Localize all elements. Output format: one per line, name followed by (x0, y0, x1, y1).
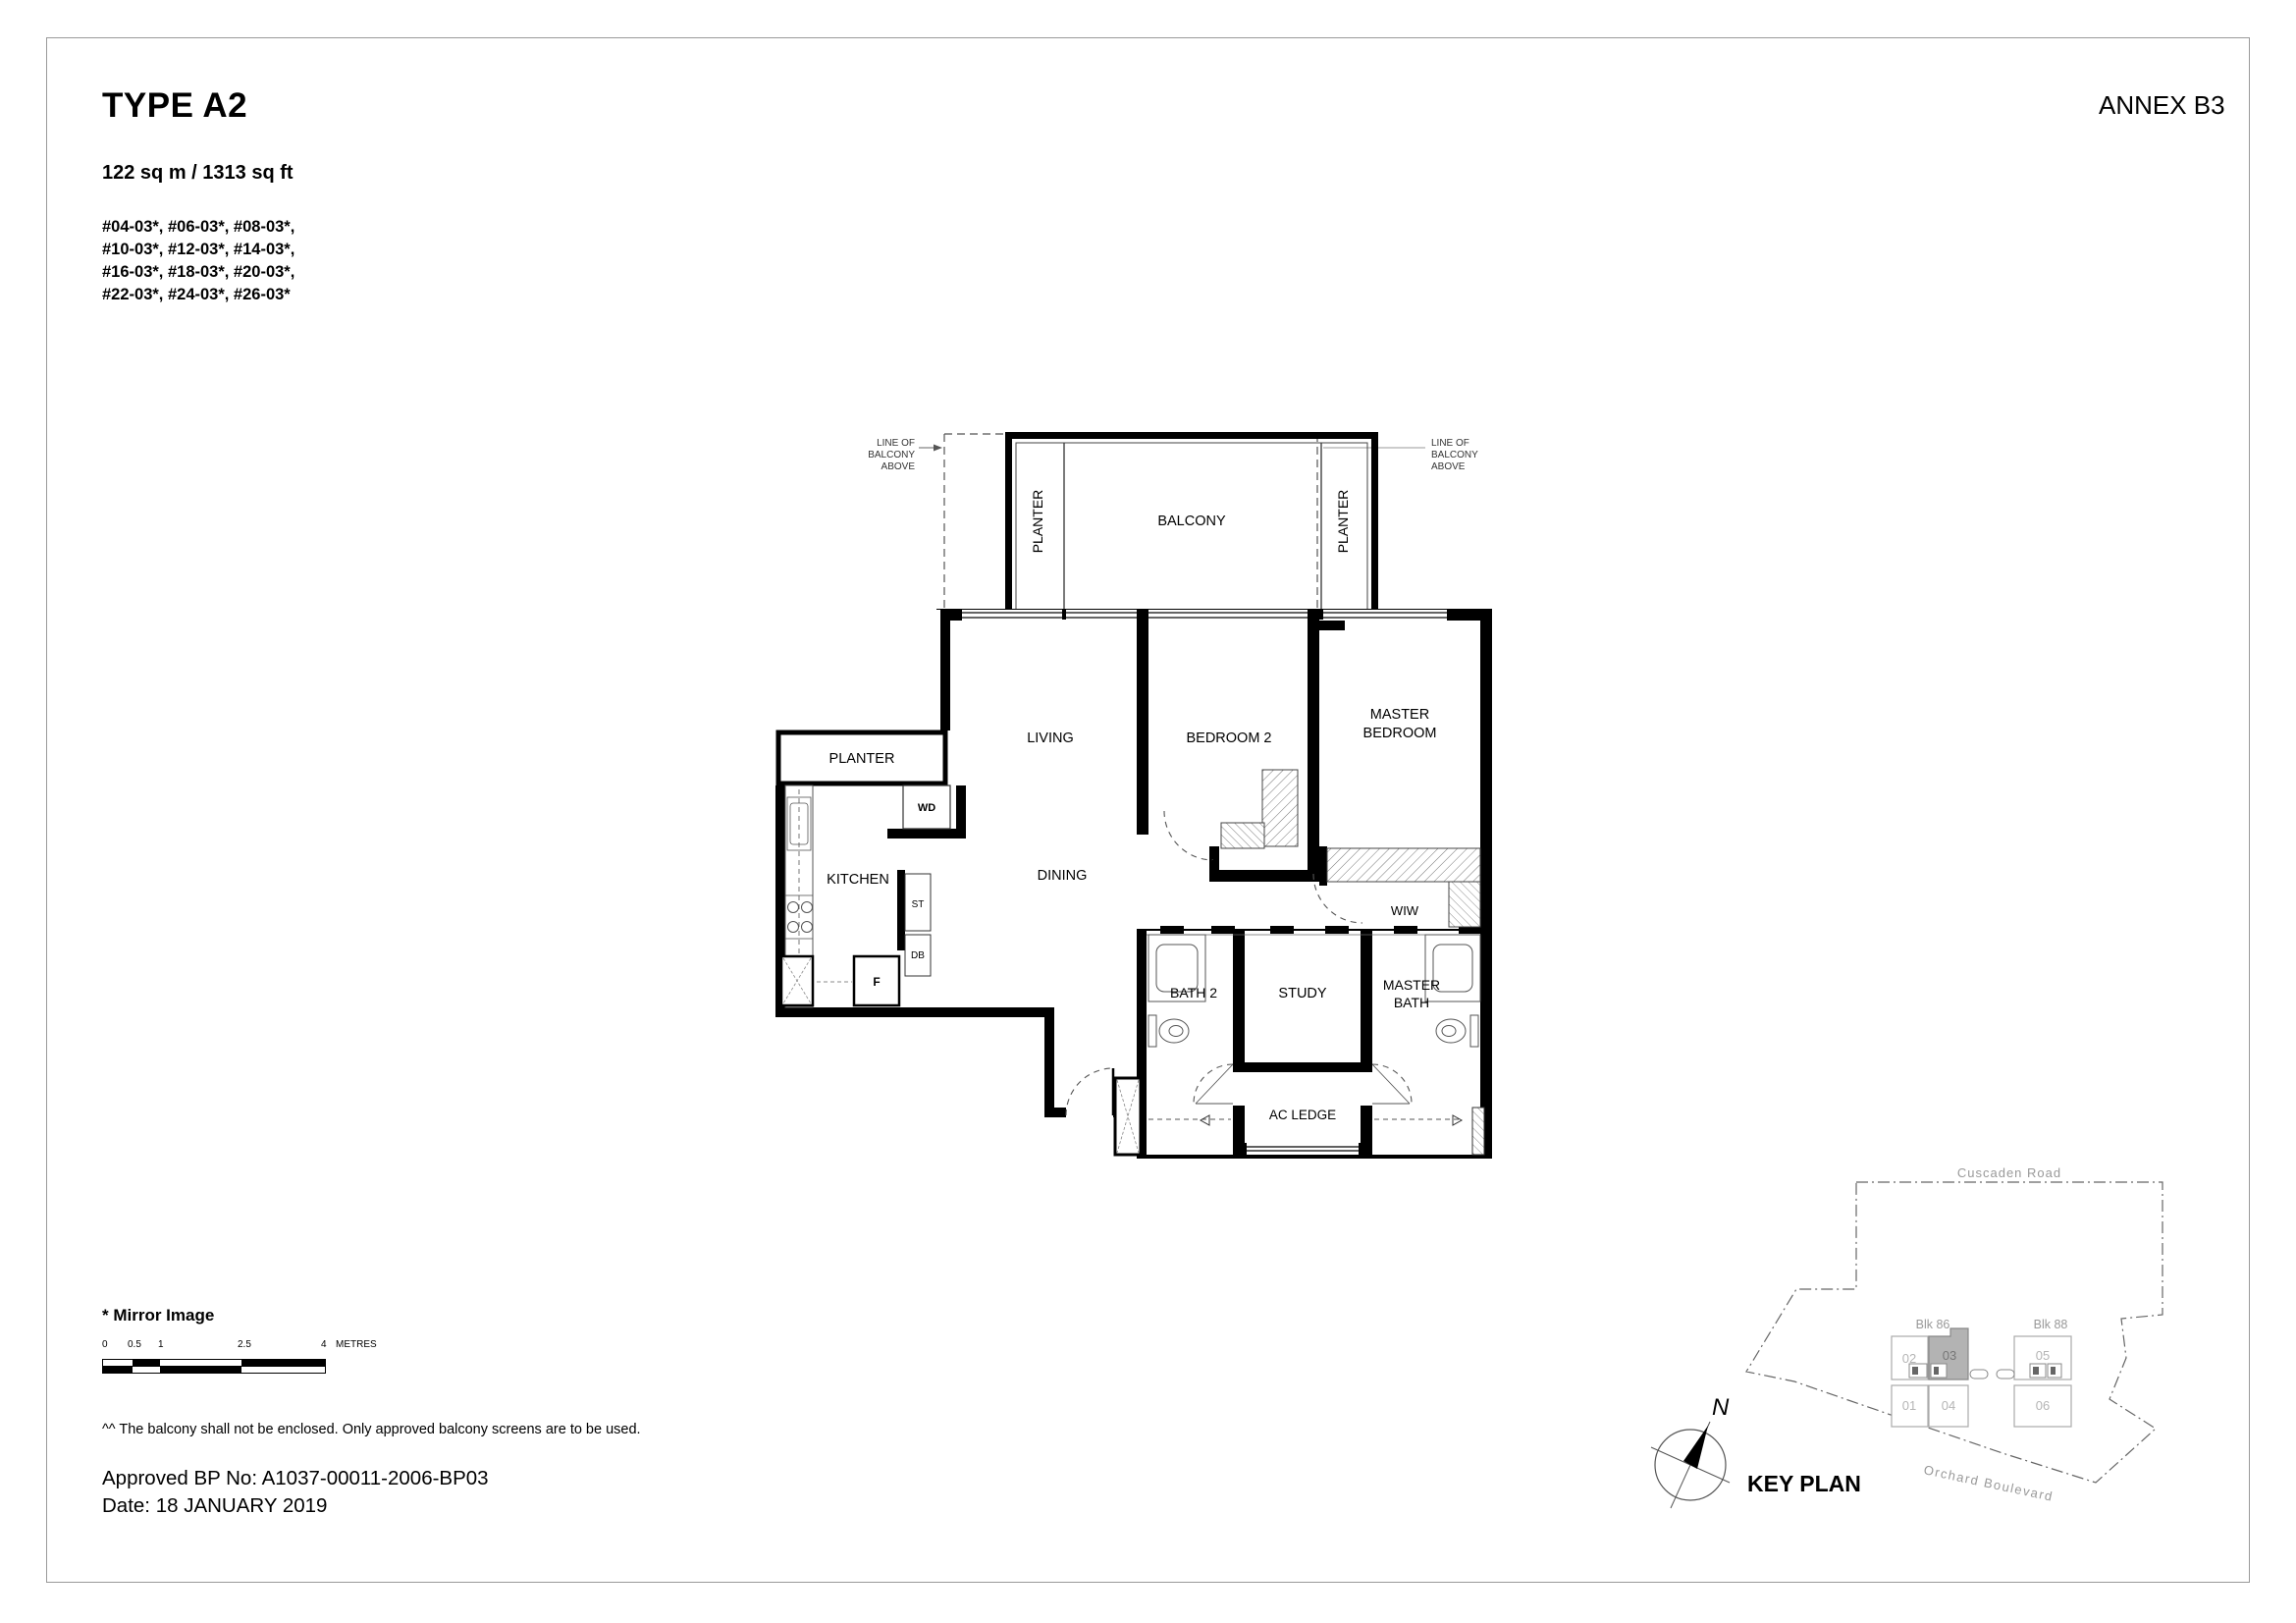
store-label: ST (912, 899, 925, 910)
line-of-balcony-label-left: LINE OF BALCONY ABOVE (868, 438, 915, 472)
bedroom2-wardrobe (1221, 770, 1298, 848)
north-compass-icon (1651, 1422, 1730, 1508)
kitchen-shaft (781, 956, 813, 1005)
bp-number: Approved BP No: A1037-00011-2006-BP03 (102, 1465, 489, 1492)
balcony-note: ^^ The balcony shall not be enclosed. On… (102, 1422, 641, 1437)
floorplan-page: TYPE A2 ANNEX B3 122 sq m / 1313 sq ft #… (0, 0, 2296, 1623)
unit-04-label: 04 (1942, 1398, 1955, 1413)
svg-text:LINE OF: LINE OF (877, 438, 915, 449)
master-bedroom-label-1: MASTER (1370, 707, 1429, 723)
svg-text:LINE OF: LINE OF (1431, 438, 1469, 449)
key-plan-title: KEY PLAN (1747, 1471, 1861, 1496)
scale-bar-ticks: 0 0.5 1 2.5 4 METRES (102, 1339, 397, 1353)
key-plan: Cuscaden Road Orchard Boulevard Blk 86 B… (1649, 1163, 2277, 1596)
entry-shaft (1115, 1078, 1141, 1155)
unit-list-line: #22-03*, #24-03*, #26-03* (102, 284, 294, 306)
tick-label: 2.5 (238, 1339, 251, 1350)
tick-label: 4 (321, 1339, 327, 1350)
unit-area: 122 sq m / 1313 sq ft (102, 162, 294, 185)
bp-date: Date: 18 JANUARY 2019 (102, 1492, 489, 1520)
unit-list-line: #04-03*, #06-03*, #08-03*, (102, 216, 294, 239)
db-label: DB (911, 950, 925, 961)
mirror-image-note: * Mirror Image (102, 1306, 214, 1325)
balcony-label: BALCONY (1157, 514, 1226, 529)
unit-05-label: 05 (2036, 1348, 2050, 1363)
kitchen-label: KITCHEN (827, 872, 889, 888)
tick-label: 1 (158, 1339, 164, 1350)
planter-left-label: PLANTER (1030, 490, 1045, 554)
line-of-balcony-label-right: LINE OF BALCONY ABOVE (1431, 438, 1478, 472)
bath-row-top-windows (1147, 926, 1480, 935)
blk86-label: Blk 86 (1916, 1318, 1950, 1331)
unit-list-line: #16-03*, #18-03*, #20-03*, (102, 261, 294, 284)
ledge-marker-left-icon (1201, 1115, 1209, 1125)
floorplan-drawing: LINE OF BALCONY ABOVE LINE OF BALCONY AB… (772, 426, 1510, 1164)
unit-list: #04-03*, #06-03*, #08-03*, #10-03*, #12-… (102, 216, 294, 306)
page-title: TYPE A2 (102, 86, 247, 126)
annex-label: ANNEX B3 (2099, 90, 2225, 121)
svg-text:ABOVE: ABOVE (881, 461, 916, 472)
master-bath-label-1: MASTER (1383, 977, 1440, 993)
ac-ledge-label: AC LEDGE (1269, 1108, 1336, 1122)
road-top-label: Cuscaden Road (1957, 1165, 2061, 1180)
master-bedroom-label-2: BEDROOM (1363, 726, 1437, 741)
scale-unit-label: METRES (336, 1339, 377, 1350)
bedroom2-label: BEDROOM 2 (1186, 730, 1271, 746)
svg-text:ABOVE: ABOVE (1431, 461, 1466, 472)
dining-label: DINING (1038, 868, 1088, 884)
blk88-label: Blk 88 (2034, 1318, 2068, 1331)
washer-dryer-label: WD (918, 802, 935, 814)
approval-block: Approved BP No: A1037-00011-2006-BP03 Da… (102, 1465, 489, 1520)
living-label: LIVING (1027, 730, 1074, 746)
blk88-footprint (1997, 1336, 2071, 1427)
unit-01-label: 01 (1902, 1398, 1916, 1413)
ac-ledge-louvers (1241, 1143, 1364, 1157)
svg-text:BALCONY: BALCONY (1431, 450, 1478, 460)
line-of-balcony-dashes (944, 434, 1317, 609)
scale-bar-graphic (102, 1359, 326, 1374)
blk88-unit-labels: 05 06 (2036, 1348, 2050, 1413)
unit-list-line: #10-03*, #12-03*, #14-03*, (102, 239, 294, 261)
north-label: N (1712, 1394, 1730, 1421)
wiw-label: WIW (1391, 903, 1419, 918)
ac-screen (1472, 1108, 1484, 1155)
ledge-marker-right-icon (1453, 1115, 1462, 1125)
master-bath-label-2: BATH (1394, 995, 1429, 1010)
left-leader-arrow-icon (934, 445, 942, 452)
unit-03-label: 03 (1943, 1348, 1956, 1363)
tick-label: 0.5 (128, 1339, 141, 1350)
bath2-label: BATH 2 (1170, 985, 1217, 1001)
planter-right-label: PLANTER (1335, 490, 1351, 554)
unit-06-label: 06 (2036, 1398, 2050, 1413)
top-wall (936, 609, 1492, 621)
planter-horizontal-label: PLANTER (829, 751, 895, 767)
road-bottom-label: Orchard Boulevard (1923, 1462, 2056, 1504)
tick-label: 0 (102, 1339, 108, 1350)
study-label: STUDY (1278, 986, 1326, 1001)
scale-bar: 0 0.5 1 2.5 4 METRES (102, 1339, 397, 1374)
svg-text:BALCONY: BALCONY (868, 450, 915, 460)
unit-02-label: 02 (1902, 1351, 1916, 1366)
fridge-label: F (873, 975, 880, 989)
